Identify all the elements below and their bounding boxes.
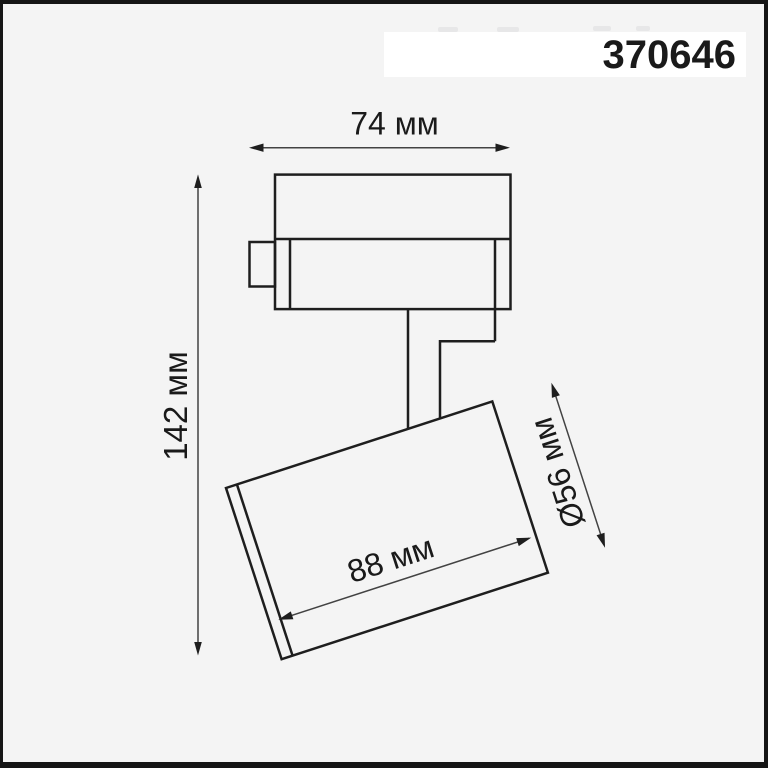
svg-text:142 мм: 142 мм: [157, 351, 194, 461]
svg-text:Ø56 мм: Ø56 мм: [523, 413, 592, 532]
svg-text:74 мм: 74 мм: [350, 106, 438, 142]
svg-text:88 мм: 88 мм: [343, 528, 438, 590]
